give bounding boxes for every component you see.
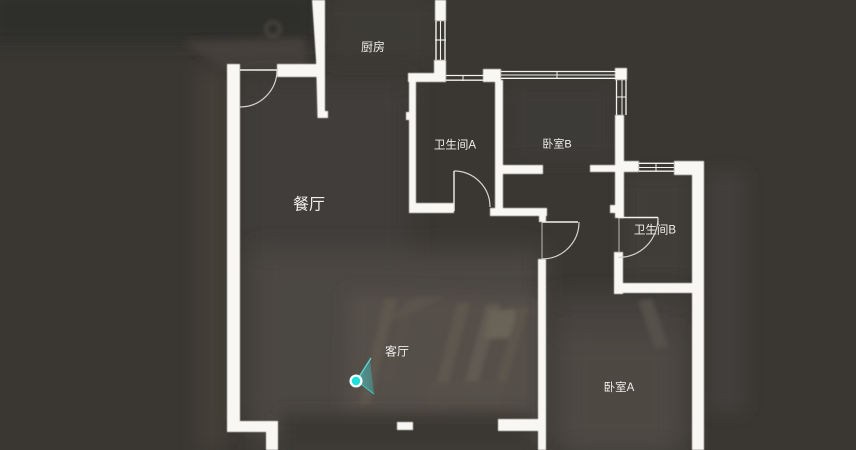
svg-text:卧室A: 卧室A: [604, 380, 635, 394]
svg-text:卫生间B: 卫生间B: [634, 223, 676, 237]
svg-text:卧室B: 卧室B: [542, 137, 571, 151]
svg-text:餐厅: 餐厅: [293, 196, 325, 214]
svg-text:客厅: 客厅: [385, 344, 409, 359]
svg-text:厨房: 厨房: [361, 39, 385, 54]
svg-text:卫生间A: 卫生间A: [434, 138, 476, 152]
